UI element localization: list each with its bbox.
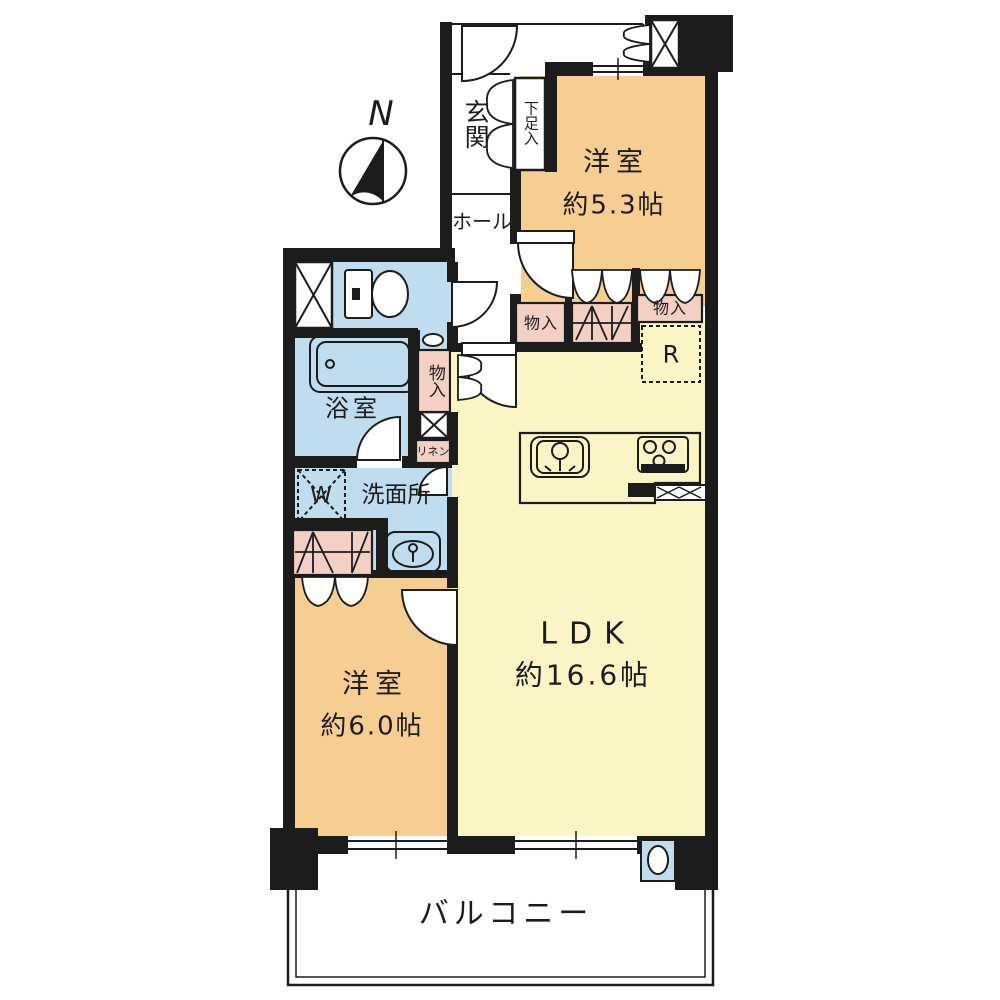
ldk-size: 約16.6帖 xyxy=(515,660,651,689)
bedroom1-label: 洋室 xyxy=(583,149,649,177)
hand-basin-icon xyxy=(423,334,443,346)
folding-door xyxy=(487,124,513,168)
folding-door xyxy=(458,377,481,400)
wall xyxy=(447,262,458,282)
floor-plan-drawing xyxy=(0,0,1000,1000)
bedroom2-size: 約6.0帖 xyxy=(320,713,423,740)
linen-label: リネン xyxy=(417,446,450,458)
toilet-door xyxy=(452,282,497,327)
wall xyxy=(447,497,458,588)
counter-hatch-panel xyxy=(655,485,706,500)
wall-pillar xyxy=(270,828,318,890)
meter-box-icon xyxy=(651,20,679,68)
ldk-label: LDK xyxy=(540,618,636,650)
entry-door xyxy=(462,26,517,81)
folding-door xyxy=(487,80,513,124)
refrigerator-label: R xyxy=(663,342,680,367)
wall xyxy=(440,22,452,260)
compass-north-icon xyxy=(340,138,406,204)
entrance-label: 玄関 xyxy=(462,99,488,149)
folding-door xyxy=(624,25,650,44)
wall xyxy=(447,836,515,854)
toilet-icon xyxy=(345,270,408,318)
wall xyxy=(447,640,458,848)
folding-door xyxy=(624,44,650,62)
wall xyxy=(283,248,455,262)
closet-a-label: 物入 xyxy=(524,316,558,333)
bathroom-label: 浴室 xyxy=(325,396,381,421)
wall xyxy=(516,343,642,352)
folding-door xyxy=(458,355,481,377)
wall xyxy=(705,72,718,845)
wall-pillar xyxy=(675,838,718,890)
door-leaf xyxy=(516,231,574,243)
bedroom2-label: 洋室 xyxy=(342,671,408,699)
closet-hall-label: 物入 xyxy=(425,364,443,398)
compass-north-label: N xyxy=(368,97,393,133)
slop-sink-icon xyxy=(641,840,675,881)
ldk-floor xyxy=(452,352,705,838)
door-leaf xyxy=(462,343,516,355)
wall xyxy=(545,62,557,172)
shoe-storage-label: 下足入 xyxy=(522,101,538,146)
washer-label: W xyxy=(310,484,332,507)
duct-box-icon xyxy=(420,412,448,438)
wall xyxy=(293,518,388,530)
washroom-label: 洗面所 xyxy=(362,483,431,507)
bedroom1-size: 約5.3帖 xyxy=(562,192,665,219)
floor-plan: N 玄関 下足入 ホール 洋室 約5.3帖 物入 物入 R 物入 リネン 浴室 … xyxy=(0,0,1000,1000)
balcony-label: バルコニー xyxy=(419,898,593,930)
shaft-box-icon xyxy=(295,262,332,328)
counter-wall-stub xyxy=(628,483,655,497)
wall xyxy=(295,456,357,468)
hall-label: ホール xyxy=(452,212,512,233)
closet-b-label: 物入 xyxy=(653,301,687,318)
